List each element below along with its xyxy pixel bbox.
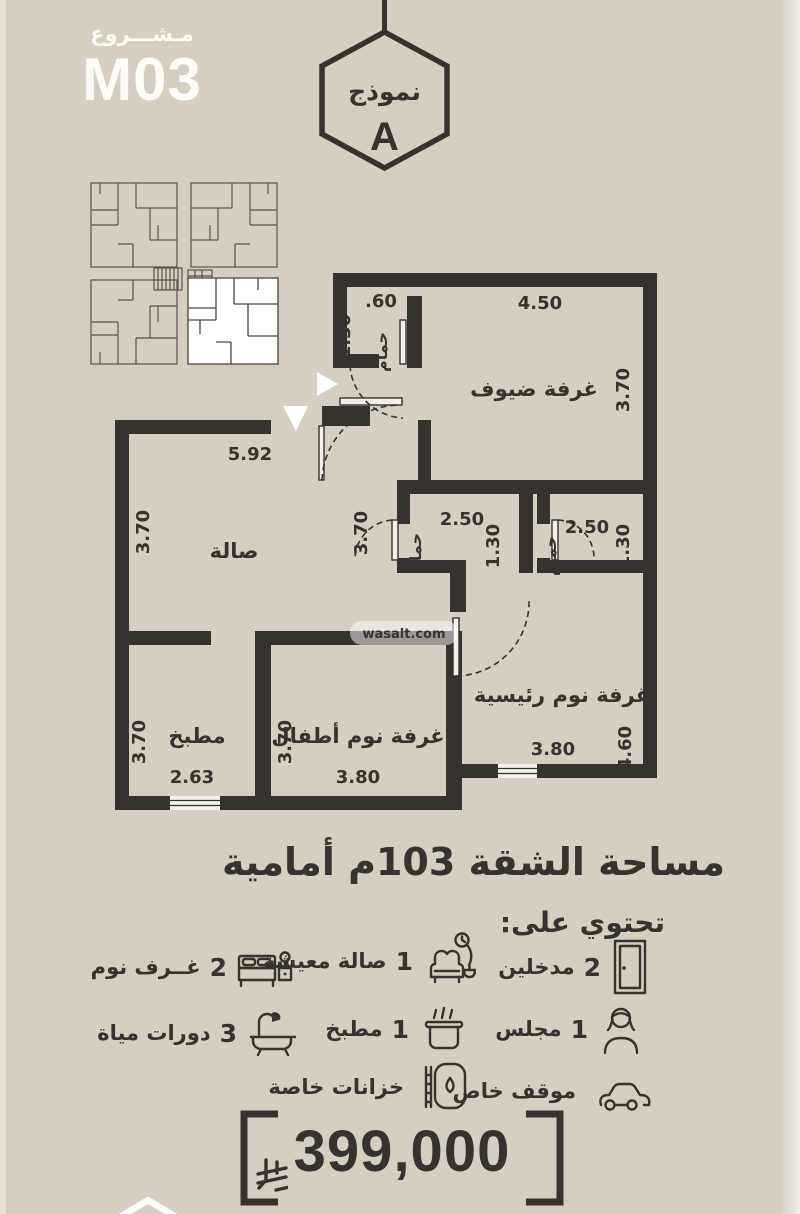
entrance-arrow-down-icon [283, 406, 308, 431]
model-value: A [370, 115, 399, 159]
amenity-bedrooms: 2 غــرف نوم [91, 938, 294, 996]
real-estate-flyer: مـشـــروع M03 نموذج A [0, 0, 800, 1214]
watermark: wasalt.com [350, 621, 458, 645]
dim-hall-width: 5.92 [228, 444, 272, 465]
project-code: M03 [72, 50, 212, 110]
dim-master-height: 4.60 [615, 726, 636, 770]
amenity-count: 2 [210, 953, 227, 982]
dim-bath-a-width: 2.50 [440, 509, 484, 530]
price-block: 399,000 [240, 1110, 564, 1206]
dim-bath-b-height: 1.30 [613, 524, 634, 568]
amenity-count: 1 [396, 947, 413, 976]
dim-kids-width: 3.80 [336, 767, 380, 788]
person-icon [597, 1003, 645, 1055]
dim-hall-height-mid: 3.70 [351, 511, 372, 555]
dim-bath-top-width: .60 [365, 291, 397, 312]
contains-label: تحتوي على: [500, 906, 665, 939]
room-label-kids: غرفة نوم أطفال [271, 721, 444, 748]
dim-bath-b-width: 2.50 [565, 517, 609, 538]
dim-kitchen-width: 2.63 [170, 767, 214, 788]
amenity-tanks: خزانات خاصة [268, 1058, 470, 1116]
amenity-living-room: 1 صالة معيشة [263, 932, 476, 990]
dim-kids-height: 3.70 [275, 720, 296, 764]
dim-bath-top-height: 1.30 [334, 314, 355, 358]
amenity-majlis: 1 مجلس [495, 1000, 645, 1058]
area-title: مساحة الشقة 103م أمامية [222, 840, 725, 884]
amenity-count: 3 [220, 1019, 237, 1048]
room-label-bath-top: حمام [372, 332, 391, 372]
dim-guest-height: 3.70 [613, 368, 634, 412]
tank-icon [422, 1059, 470, 1115]
amenity-label: دورات مياة [97, 1021, 210, 1045]
amenity-entrances: 2 مدخلين [498, 938, 650, 996]
room-label-hall: صالة [210, 539, 259, 563]
floor-plan: wasalt.com .60 1.30 حمام 4.50 3.70 غرفة … [100, 268, 680, 813]
entrance-arrow-right-icon [317, 372, 338, 396]
model-label: نموذج [348, 77, 421, 107]
room-label-kitchen: مطبخ [168, 724, 225, 748]
right-edge-highlight [780, 0, 800, 1214]
dim-hall-height: 3.70 [133, 510, 154, 554]
door-icon [610, 938, 650, 996]
amenity-label: موقف خاص [452, 1079, 576, 1103]
amenity-count: 2 [584, 953, 601, 982]
project-title-block: مـشـــروع M03 [72, 22, 212, 110]
amenity-label: خزانات خاصة [268, 1075, 404, 1099]
left-edge-highlight [0, 0, 6, 1214]
dim-kitchen-height: 3.70 [129, 720, 150, 764]
amenity-count: 1 [392, 1015, 409, 1044]
sofa-icon [422, 930, 476, 992]
price-amount: 399,000 [240, 1118, 564, 1185]
room-label-master: غرفة نوم رئيسية [474, 683, 650, 707]
amenity-count: 1 [571, 1015, 588, 1044]
amenity-bathrooms: 3 دورات مياة [97, 1004, 298, 1062]
room-label-bath-b: حمام [541, 536, 560, 576]
amenity-label: غــرف نوم [91, 955, 201, 979]
model-badge: نموذج A [317, 0, 452, 174]
bed-icon [236, 942, 294, 992]
watermark-text: wasalt.com [362, 627, 445, 642]
room-label-guest: غرفة ضيوف [470, 377, 598, 401]
dim-bath-a-height: 1.30 [483, 524, 504, 568]
dim-master-width: 3.80 [531, 739, 575, 760]
project-label: مـشـــروع [72, 22, 212, 46]
dim-guest-width: 4.50 [518, 293, 562, 314]
pot-icon [418, 1002, 470, 1056]
car-icon [594, 1067, 652, 1115]
amenity-label: مجلس [495, 1017, 561, 1041]
amenity-label: مطبخ [325, 1017, 382, 1041]
room-label-bath-a: حمام [406, 533, 425, 573]
bathtub-icon [246, 1007, 298, 1059]
amenity-label: مدخلين [498, 955, 574, 979]
amenity-kitchen: 1 مطبخ [325, 1000, 470, 1058]
wasalt-logo-diamond-icon [79, 1196, 218, 1214]
